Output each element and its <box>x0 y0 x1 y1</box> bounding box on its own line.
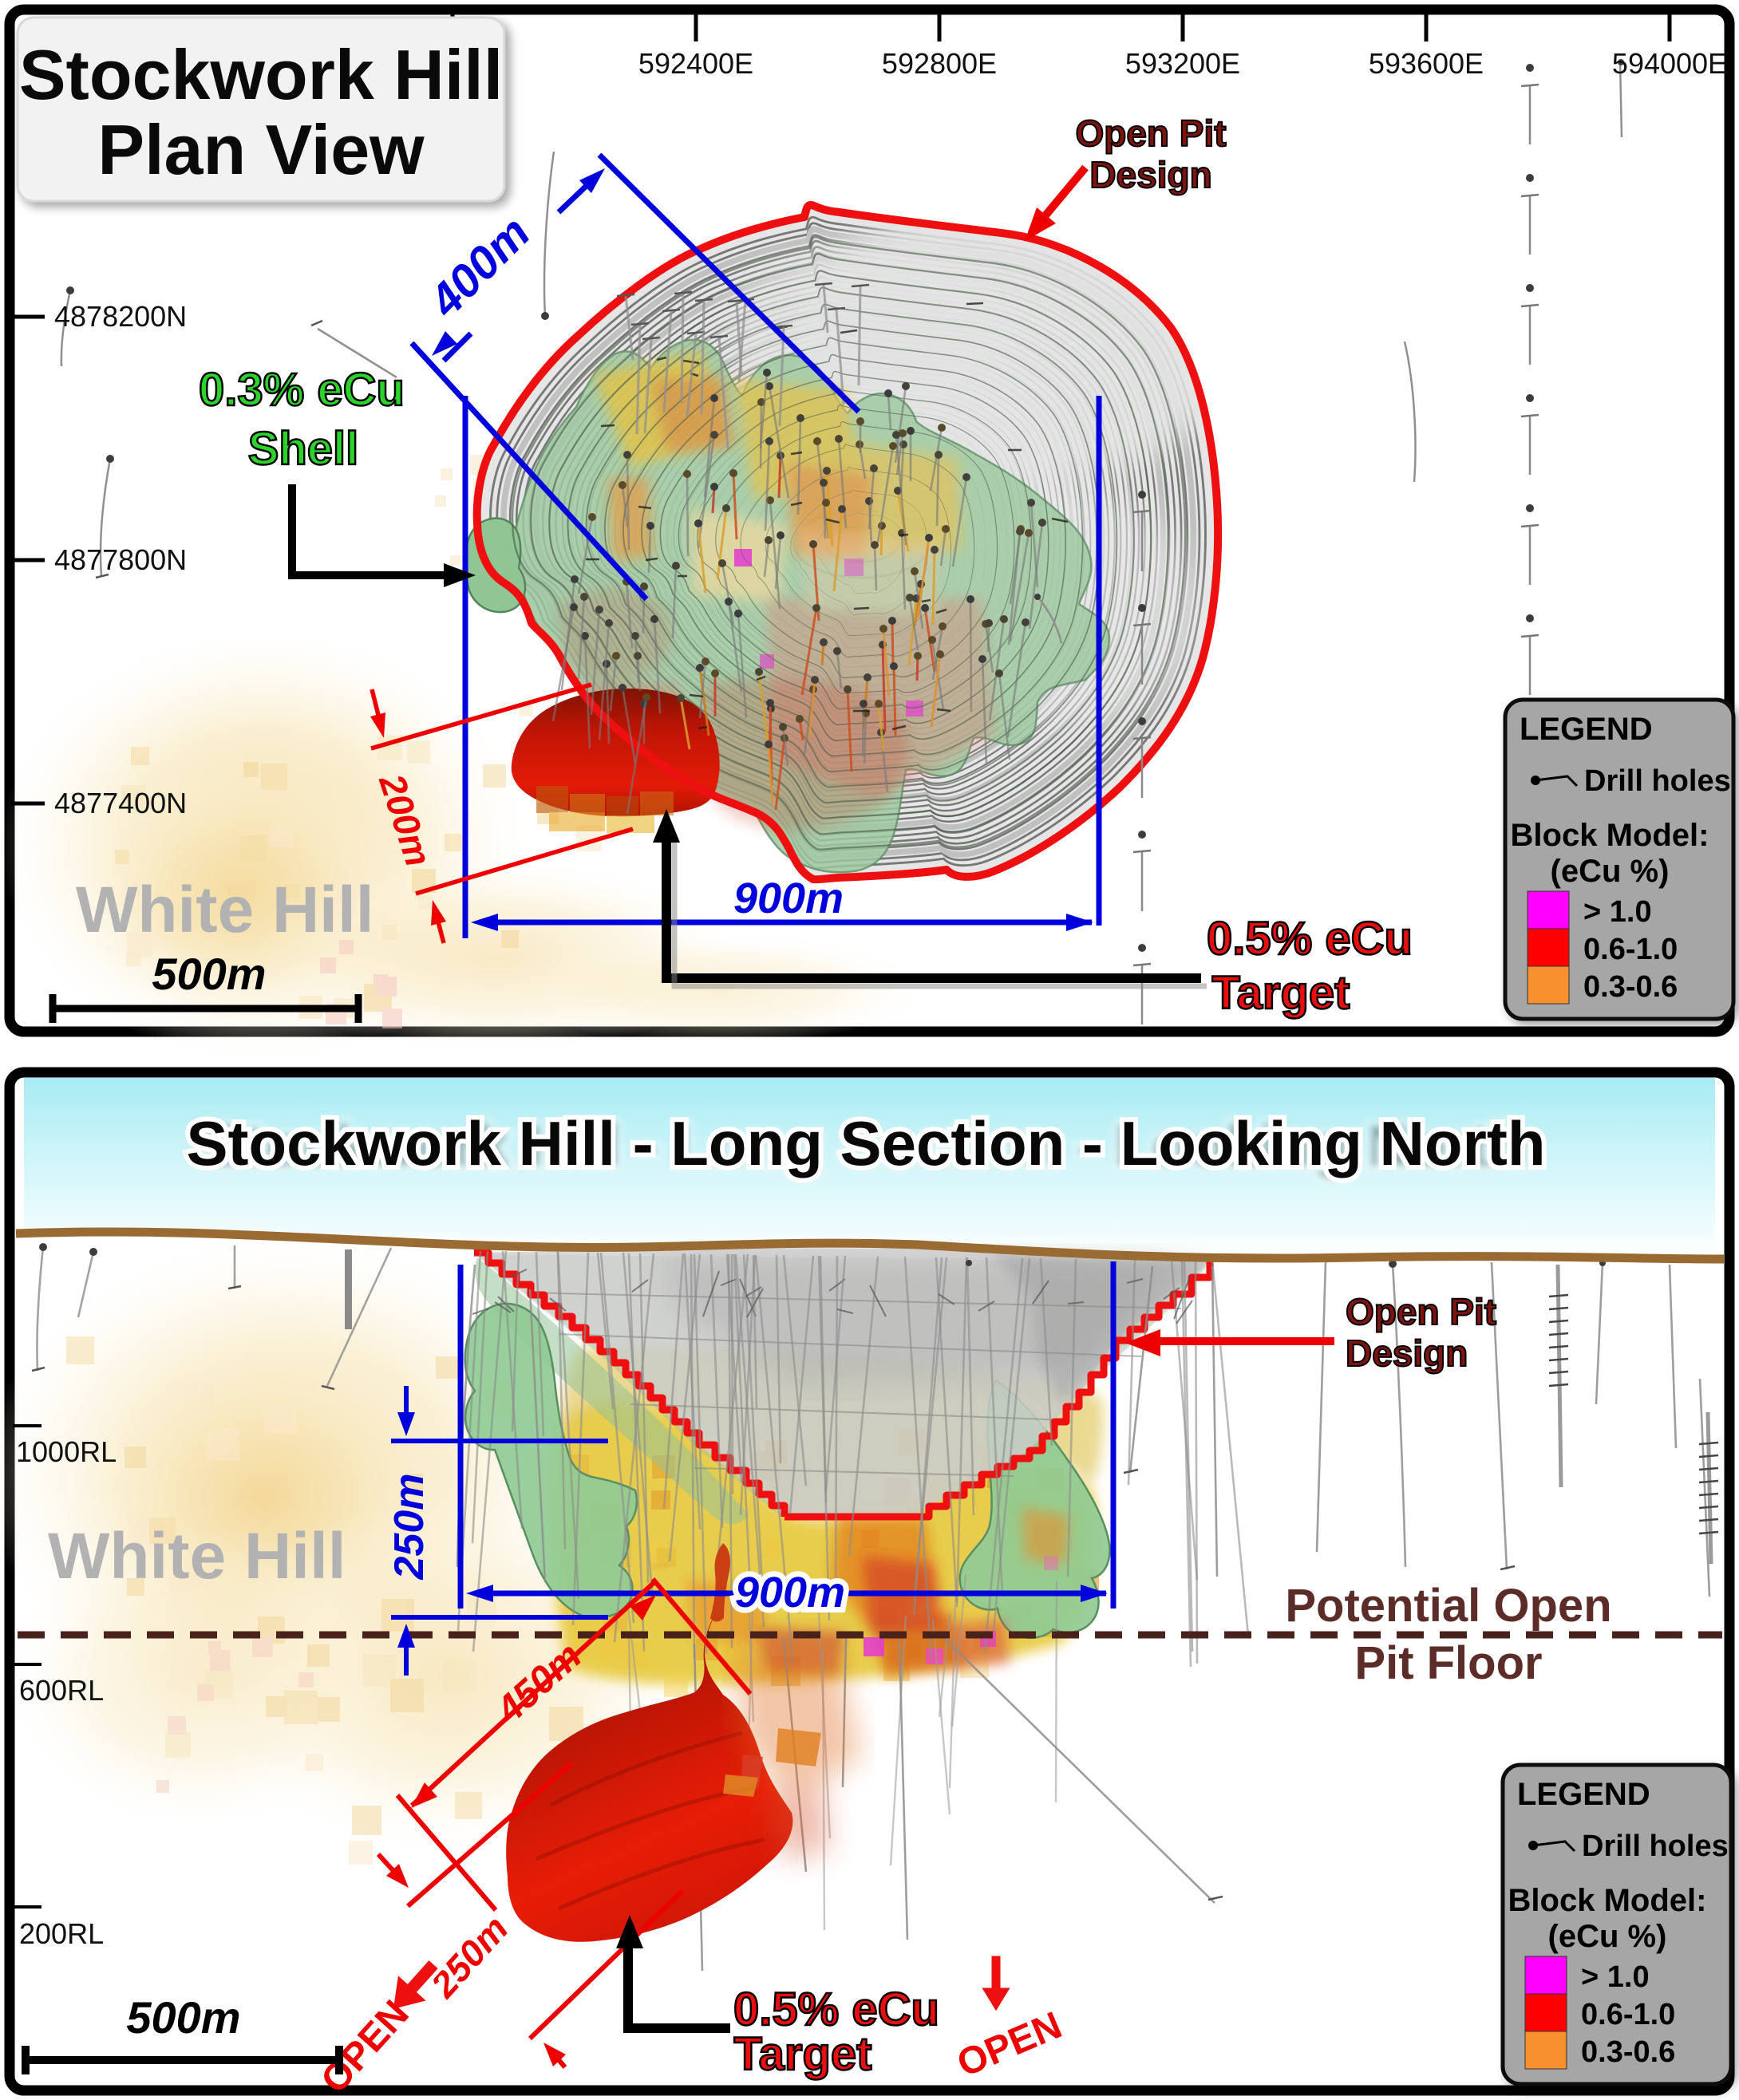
svg-text:Open Pit: Open Pit <box>1346 1291 1496 1332</box>
svg-text:Potential Open: Potential Open <box>1285 1580 1611 1632</box>
svg-text:Stockwork Hill: Stockwork Hill <box>19 35 503 114</box>
svg-text:592400E: 592400E <box>638 47 753 80</box>
svg-text:> 1.0: > 1.0 <box>1581 1960 1650 1994</box>
svg-text:LEGEND: LEGEND <box>1520 712 1653 747</box>
svg-text:Plan View: Plan View <box>97 110 425 189</box>
svg-text:> 1.0: > 1.0 <box>1583 895 1652 929</box>
svg-text:Open Pit: Open Pit <box>1075 112 1226 154</box>
svg-text:4877400N: 4877400N <box>54 787 187 819</box>
svg-text:(eCu %): (eCu %) <box>1548 1919 1667 1954</box>
svg-text:900m: 900m <box>733 874 844 922</box>
svg-text:0.3-0.6: 0.3-0.6 <box>1583 970 1678 1004</box>
svg-text:200RL: 200RL <box>19 1917 104 1950</box>
svg-text:Design: Design <box>1089 154 1211 195</box>
svg-text:0.3-0.6: 0.3-0.6 <box>1581 2035 1675 2069</box>
svg-text:500m: 500m <box>152 949 266 999</box>
svg-text:Pit Floor: Pit Floor <box>1354 1637 1542 1689</box>
svg-text:900m: 900m <box>735 1569 845 1616</box>
svg-text:Target: Target <box>734 2028 872 2080</box>
svg-text:592800E: 592800E <box>882 47 997 80</box>
svg-text:594000E: 594000E <box>1612 47 1727 80</box>
svg-text:0.5% eCu: 0.5% eCu <box>1207 913 1413 965</box>
svg-text:Target: Target <box>1212 967 1350 1019</box>
svg-text:Block Model:: Block Model: <box>1511 818 1709 853</box>
svg-text:0.3% eCu: 0.3% eCu <box>199 364 405 416</box>
svg-text:500m: 500m <box>126 1992 240 2043</box>
svg-text:1000RL: 1000RL <box>16 1435 117 1468</box>
svg-text:Stockwork Hill - Long Section: Stockwork Hill - Long Section - Looking … <box>187 1108 1546 1178</box>
svg-text:Drill holes: Drill holes <box>1582 1830 1729 1863</box>
svg-text:600RL: 600RL <box>19 1674 104 1707</box>
svg-text:Block Model:: Block Model: <box>1508 1883 1707 1918</box>
svg-text:Shell: Shell <box>248 423 359 475</box>
svg-text:4877800N: 4877800N <box>54 543 187 576</box>
svg-text:White Hill: White Hill <box>48 1520 346 1593</box>
svg-text:White Hill: White Hill <box>76 874 374 946</box>
svg-text:Design: Design <box>1346 1332 1468 1374</box>
svg-text:250m: 250m <box>386 1474 433 1581</box>
svg-text:4878200N: 4878200N <box>54 300 187 333</box>
svg-text:593600E: 593600E <box>1369 47 1484 80</box>
svg-text:Drill holes: Drill holes <box>1584 764 1731 798</box>
svg-text:593200E: 593200E <box>1125 47 1240 80</box>
svg-text:(eCu %): (eCu %) <box>1551 854 1670 889</box>
svg-text:0.6-1.0: 0.6-1.0 <box>1581 1998 1675 2031</box>
svg-text:LEGEND: LEGEND <box>1517 1777 1650 1812</box>
svg-text:0.6-1.0: 0.6-1.0 <box>1583 933 1678 966</box>
